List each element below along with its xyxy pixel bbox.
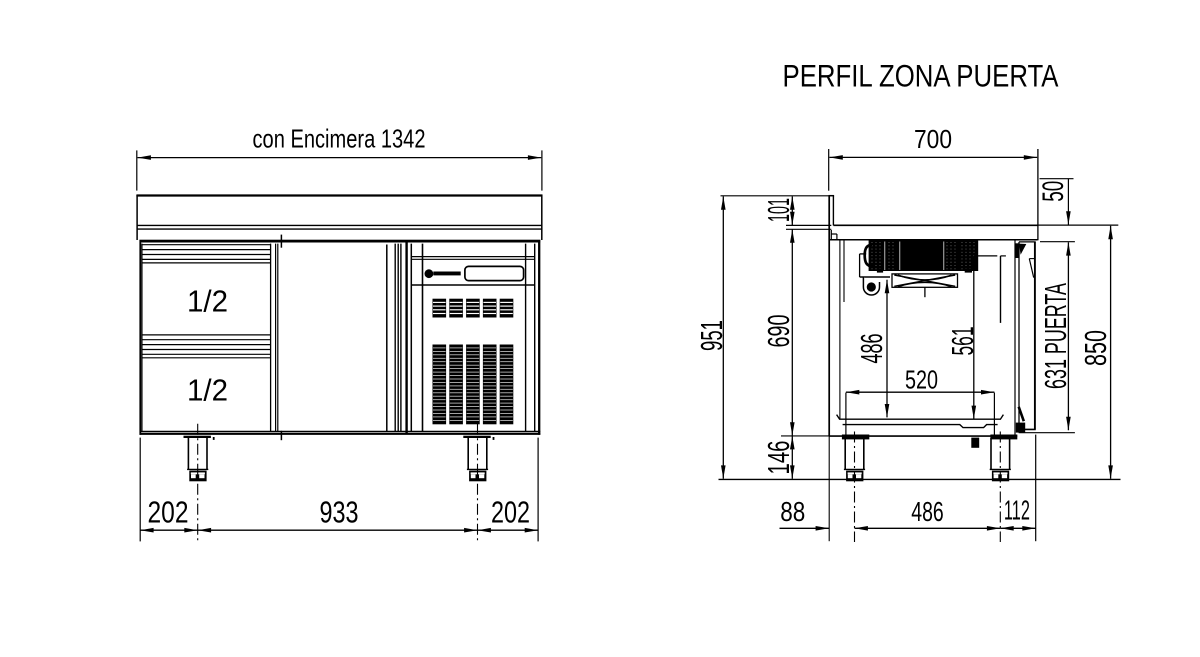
- svg-text:101: 101: [761, 198, 796, 222]
- svg-text:202: 202: [148, 495, 189, 529]
- svg-text:850: 850: [1078, 330, 1113, 366]
- svg-text:561: 561: [945, 327, 980, 356]
- svg-text:PERFIL ZONA PUERTA: PERFIL ZONA PUERTA: [783, 58, 1059, 94]
- svg-text:700: 700: [914, 126, 952, 154]
- svg-text:88: 88: [780, 496, 805, 527]
- svg-text:933: 933: [320, 495, 359, 529]
- svg-text:112: 112: [1004, 494, 1030, 525]
- svg-text:520: 520: [905, 366, 938, 394]
- svg-text:690: 690: [761, 315, 796, 348]
- svg-text:1/2: 1/2: [187, 284, 228, 319]
- svg-text:631 PUERTA: 631 PUERTA: [1038, 283, 1073, 389]
- svg-text:1/2: 1/2: [187, 373, 228, 408]
- svg-text:50: 50: [1037, 181, 1070, 202]
- svg-text:486: 486: [911, 496, 944, 527]
- svg-text:146: 146: [761, 441, 796, 475]
- svg-text:486: 486: [854, 334, 889, 364]
- svg-text:951: 951: [694, 320, 729, 351]
- svg-text:con Encimera 1342: con Encimera 1342: [253, 124, 426, 154]
- svg-text:202: 202: [491, 495, 530, 529]
